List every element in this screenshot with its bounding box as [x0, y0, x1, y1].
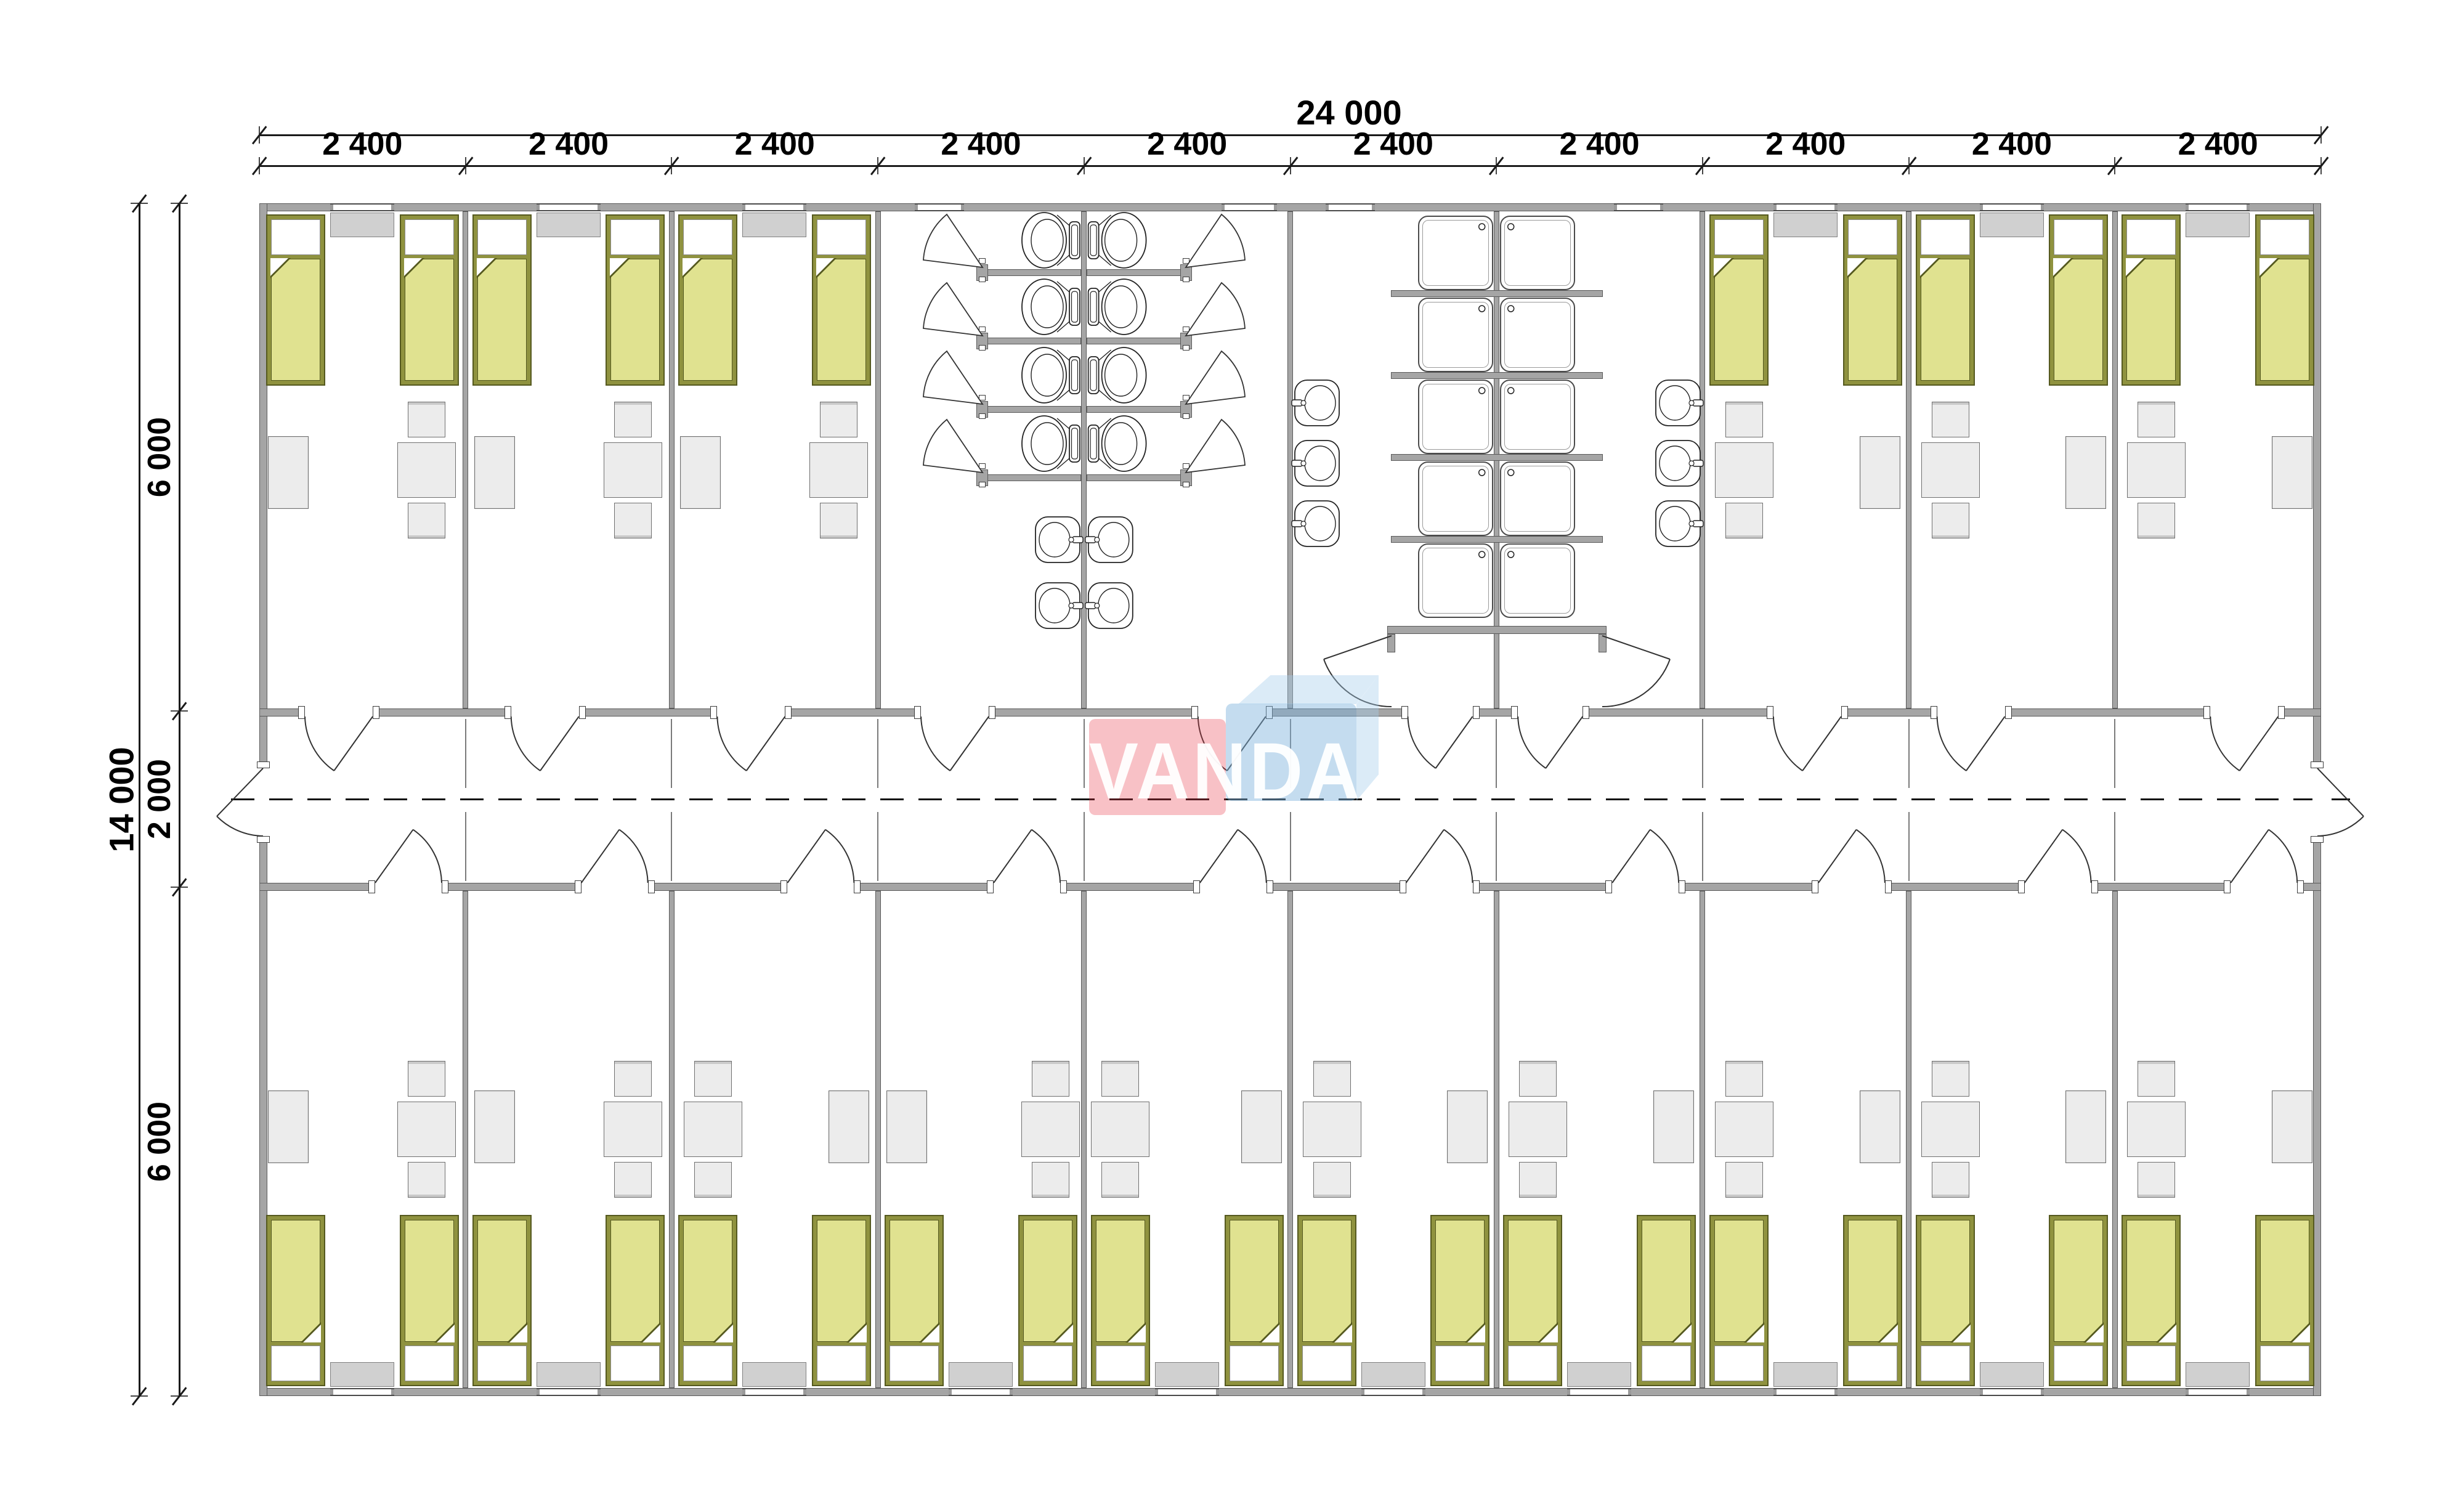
shower-partition [1391, 536, 1603, 543]
logo-blue-bevel-top [1238, 675, 1379, 704]
shower-tray-inner [1422, 466, 1489, 532]
door-jamb [1473, 880, 1480, 893]
toilet-cistern [1088, 288, 1099, 325]
bed-blanket [1023, 1220, 1072, 1342]
desk [1447, 1090, 1488, 1163]
bed-blanket [683, 259, 732, 381]
door-jamb [2297, 880, 2304, 893]
bed-fold [1262, 1325, 1279, 1342]
toilet-icon [1031, 354, 1063, 396]
bed [812, 1215, 871, 1386]
toilet-cistern [1090, 225, 1096, 256]
radiator [742, 1362, 806, 1387]
chair [2138, 1162, 2175, 1198]
chair [1519, 1061, 1557, 1097]
door-swing [717, 716, 746, 771]
bed-pillow [1921, 1346, 1970, 1381]
bed [400, 1215, 459, 1386]
bed-blanket [1302, 1220, 1352, 1342]
door-swing [1200, 830, 1238, 883]
chair [1032, 1162, 1069, 1198]
bed-fold [683, 258, 700, 276]
bed-fold [2053, 258, 2071, 276]
bed-blanket [477, 1220, 527, 1342]
bed [1916, 1215, 1975, 1386]
toilet-icon [1102, 279, 1146, 335]
radiator [1361, 1362, 1425, 1387]
door-swing [2240, 716, 2279, 771]
sink-tap [1095, 537, 1100, 542]
door-opening [717, 708, 785, 717]
toilet-icon [1022, 279, 1066, 335]
sink-icon [1035, 583, 1080, 628]
dim-label-module: 2 400 [1713, 126, 1898, 160]
radiator [1155, 1362, 1219, 1387]
sink-icon [1660, 506, 1690, 541]
door-opening [994, 882, 1060, 891]
bed-blanket [1848, 1220, 1897, 1342]
door-jamb [298, 706, 305, 719]
door-jamb [780, 880, 787, 893]
door-jamb [1841, 706, 1848, 719]
bed-fold [303, 1325, 321, 1342]
sink-icon [1656, 501, 1700, 546]
desk [2272, 1090, 2312, 1163]
dim-label-module: 2 400 [2126, 126, 2311, 160]
chair [1725, 1061, 1763, 1097]
chair [1932, 402, 1969, 437]
radiator [949, 1362, 1013, 1387]
bed-pillow [1714, 1346, 1764, 1381]
bed-fold [2126, 258, 2144, 276]
door-jamb [579, 706, 586, 719]
sink-icon [1039, 588, 1070, 623]
door-jamb [1183, 258, 1189, 264]
dim-label-module: 2 400 [683, 126, 867, 160]
shower-tray-inner [1504, 302, 1571, 368]
module-centerline [1290, 719, 1291, 788]
window [330, 203, 394, 211]
door-jamb [2203, 706, 2210, 719]
room-wall [463, 891, 468, 1388]
shower-tray [1418, 543, 1493, 618]
toilet-icon [1031, 219, 1063, 261]
door-jamb [1767, 706, 1773, 719]
bed-fold [1334, 1325, 1352, 1342]
door-jamb [1266, 880, 1273, 893]
door-jamb [1060, 880, 1067, 893]
door-opening [305, 708, 373, 717]
sink-tap [1301, 461, 1306, 466]
shower-partition [1391, 290, 1603, 297]
shower-partition [1391, 372, 1603, 379]
door-jamb [1400, 880, 1406, 893]
radiator [2186, 1362, 2250, 1387]
table [1715, 1102, 1773, 1157]
toilet-cistern [1090, 291, 1096, 322]
toilet-icon [1099, 418, 1111, 469]
door-swing [2231, 830, 2269, 883]
window [537, 1388, 601, 1396]
door-swing [950, 716, 989, 771]
wc-partition [986, 338, 1081, 344]
door-swing [1650, 830, 1679, 883]
door-jamb [1266, 706, 1273, 719]
room-wall [669, 211, 675, 708]
shower-tray-inner [1422, 548, 1489, 614]
door-opening [2210, 708, 2278, 717]
dim-label-section: 6 000 [141, 417, 178, 497]
sink-icon [1295, 501, 1339, 546]
door-jamb [979, 277, 986, 282]
bed-fold [1847, 258, 1865, 276]
door-jamb [1183, 395, 1189, 400]
module-centerline [877, 719, 878, 788]
table [604, 442, 662, 498]
table [1715, 442, 1773, 498]
stall-door [923, 214, 983, 267]
bed [1503, 1215, 1562, 1386]
door-opening [2025, 882, 2091, 891]
door-swing [1324, 636, 1392, 659]
shower-tray-inner [1422, 302, 1489, 368]
bed-blanket [2126, 259, 2176, 381]
radiator [1980, 1362, 2044, 1387]
door-jamb [505, 706, 511, 719]
room-wall [1081, 891, 1087, 1388]
radiator [1980, 213, 2044, 237]
toilet-cistern [1090, 428, 1096, 459]
toilet-icon [1057, 282, 1069, 332]
sink-tap [1095, 603, 1100, 608]
toilet-icon [1022, 347, 1066, 403]
desk [1860, 436, 1900, 509]
sink-icon [1039, 522, 1070, 557]
bed-blanket [2260, 259, 2309, 381]
room-wall [1287, 211, 1293, 708]
door-opening [1408, 708, 1473, 717]
door-jamb [1605, 880, 1612, 893]
toilet-cistern [1069, 222, 1080, 259]
door-jamb [1473, 706, 1480, 719]
bed-blanket [1435, 1220, 1485, 1342]
bed-fold [1880, 1325, 1898, 1342]
table [1509, 1102, 1567, 1157]
bed [1225, 1215, 1284, 1386]
corridor-centerline [231, 798, 2350, 800]
door-swing [2062, 830, 2091, 883]
room-wall [2112, 211, 2118, 708]
wc-partition [986, 474, 1081, 481]
toilet-icon [1099, 350, 1111, 400]
toilet-icon [1105, 423, 1137, 465]
bed-pillow [1642, 1346, 1691, 1381]
shower-vestibule-post [1599, 634, 1607, 652]
chair [614, 402, 652, 437]
room-wall [1906, 211, 1911, 708]
door-opening [787, 882, 854, 891]
stall-door [1186, 420, 1245, 473]
sink-tap [1085, 603, 1096, 609]
stall-door [1186, 214, 1245, 267]
room-wall [2112, 891, 2118, 1388]
desk [680, 436, 721, 509]
dim-label-module: 2 400 [270, 126, 455, 160]
bed-fold [1920, 258, 1938, 276]
shower-vestibule-post [1387, 634, 1395, 652]
door-swing [334, 716, 373, 771]
sink-icon [1656, 380, 1700, 426]
chair [614, 503, 652, 538]
stall-door [923, 351, 983, 404]
bed-pillow [2260, 1346, 2309, 1381]
chair [2138, 402, 2175, 437]
bed-fold [1055, 1325, 1073, 1342]
bed-fold [1674, 1325, 1692, 1342]
toilet-icon [1022, 213, 1066, 268]
sink-tap [1301, 400, 1306, 405]
door-opening [2231, 882, 2297, 891]
door-jamb [2091, 880, 2098, 893]
room-wall [1700, 891, 1705, 1388]
door-swing [1408, 716, 1436, 768]
door-swing [1238, 830, 1266, 883]
window [1773, 1388, 1838, 1396]
shower-tray-inner [1422, 384, 1489, 450]
corridor-wall-bottom [259, 883, 2321, 891]
dim-label-total-width: 24 000 [1226, 92, 1472, 132]
shower-tray [1500, 216, 1575, 290]
dim-label-module: 2 400 [1507, 126, 1692, 160]
door-jamb [1191, 706, 1198, 719]
toilet-cistern [1088, 425, 1099, 462]
door-jamb [2311, 836, 2324, 843]
door-jamb [1511, 706, 1518, 719]
bed-fold [610, 258, 628, 276]
bed-blanket [1096, 1220, 1145, 1342]
sink-tap [1292, 400, 1302, 406]
door-swing [2210, 716, 2239, 771]
table [604, 1102, 662, 1157]
room-wall [875, 891, 881, 1388]
dim-label-section: 6 000 [141, 1102, 178, 1182]
logo-blue-bevel-side [1356, 675, 1379, 801]
shower-tray [1418, 298, 1493, 372]
door-swing [305, 716, 334, 771]
door-jamb [1193, 880, 1200, 893]
bed [266, 214, 325, 386]
door-swing [1227, 716, 1266, 771]
desk [1653, 1090, 1694, 1163]
door-jamb [854, 880, 861, 893]
stall-door [1186, 283, 1245, 336]
radiator [537, 213, 601, 237]
door-jamb [2018, 880, 2025, 893]
logo-text: VANDA [1089, 726, 1360, 816]
chair [1725, 402, 1763, 437]
dim-label-total-height: 14 000 [102, 747, 142, 852]
bed-pillow [1023, 1346, 1072, 1381]
door-swing [2317, 816, 2364, 836]
sink-tap [1689, 400, 1694, 405]
toilet-icon [1099, 282, 1111, 332]
door-swing [1612, 830, 1650, 883]
toilet-icon [1105, 219, 1137, 261]
module-centerline [1702, 812, 1703, 881]
door-swing [619, 830, 647, 883]
bed [1430, 1215, 1489, 1386]
bed-pillow [2126, 219, 2176, 255]
module-centerline [2114, 719, 2115, 788]
module-centerline [1084, 719, 1085, 788]
bed [2255, 214, 2314, 386]
module-centerline [1702, 719, 1703, 788]
room-wall [875, 211, 881, 708]
door-swing [787, 830, 825, 883]
table [2127, 1102, 2186, 1157]
room-wall [1700, 211, 1705, 708]
bed [1843, 214, 1902, 386]
bed-pillow [271, 1346, 320, 1381]
door-opening [1406, 882, 1473, 891]
door-swing [1602, 659, 1670, 707]
bed [678, 1215, 737, 1386]
wc-partition [986, 406, 1081, 413]
bed-fold [1953, 1325, 1971, 1342]
toilet-cistern [1072, 428, 1078, 459]
radiator [330, 213, 394, 237]
bed-fold [1540, 1325, 1558, 1342]
dim-label-module: 2 400 [1919, 126, 2104, 160]
door-swing [1032, 830, 1060, 883]
bed-pillow [2054, 1346, 2103, 1381]
toilet-cistern [1088, 357, 1099, 394]
sink-icon [1088, 583, 1133, 628]
window [742, 1388, 806, 1396]
room-wall [669, 891, 675, 1388]
door-swing [825, 830, 854, 883]
chair [614, 1061, 652, 1097]
door-swing [2025, 830, 2063, 883]
door-jamb [257, 836, 270, 843]
bed [678, 214, 737, 386]
dim-label-section: 2 000 [141, 759, 178, 839]
module-centerline [671, 812, 672, 881]
chair [614, 1162, 652, 1198]
bed-pillow [2126, 1346, 2176, 1381]
chair [2138, 1061, 2175, 1097]
bed [2122, 1215, 2181, 1386]
module-centerline [877, 812, 878, 881]
bed-blanket [610, 259, 660, 381]
door-swing [1773, 716, 1802, 771]
toilet-cistern [1069, 288, 1080, 325]
desk [829, 1090, 869, 1163]
table [2127, 442, 2186, 498]
door-jamb [2311, 761, 2324, 768]
bed-fold [922, 1325, 939, 1342]
door-jamb [785, 706, 792, 719]
stall-door [923, 283, 983, 336]
door-jamb [979, 258, 986, 264]
bed-fold [2158, 1325, 2176, 1342]
radiator [742, 213, 806, 237]
door-jamb [1812, 880, 1818, 893]
shower-tray [1500, 461, 1575, 536]
bed [1018, 1215, 1077, 1386]
bed-blanket [2054, 259, 2103, 381]
module-centerline [465, 812, 466, 881]
door-jamb [2278, 706, 2285, 719]
door-swing [2269, 830, 2297, 883]
door-jamb [914, 706, 921, 719]
bed-fold [477, 258, 495, 276]
window [330, 1388, 394, 1396]
bed-blanket [271, 259, 320, 381]
door-opening [1198, 708, 1266, 717]
door-swing [582, 830, 620, 883]
door-swing [375, 830, 413, 883]
radiator [2186, 213, 2250, 237]
bed [1916, 214, 1975, 386]
chair [820, 402, 857, 437]
door-swing [921, 716, 950, 771]
stall-door [923, 420, 983, 473]
bed-fold [437, 1325, 455, 1342]
bed-pillow [271, 219, 320, 255]
door-opening [921, 708, 989, 717]
sink-tap [1689, 461, 1694, 466]
shower-tray-inner [1504, 548, 1571, 614]
window [2186, 203, 2250, 211]
table [1303, 1102, 1361, 1157]
bed-fold [642, 1325, 660, 1342]
bed-pillow [890, 1346, 939, 1381]
bed-blanket [1714, 259, 1764, 381]
chair [1725, 1162, 1763, 1198]
door-jamb [979, 327, 986, 332]
door-jamb [710, 706, 717, 719]
module-centerline [2114, 812, 2115, 881]
bed [1709, 1215, 1769, 1386]
module-centerline [1084, 812, 1085, 881]
table [1921, 442, 1980, 498]
bed-pillow [610, 1346, 660, 1381]
shower-tray-inner [1422, 220, 1489, 286]
sink-tap [1085, 537, 1096, 543]
wc-partition [1087, 474, 1183, 481]
toilet-cistern [1072, 225, 1078, 256]
bed-blanket [271, 1220, 320, 1342]
bed [1297, 1215, 1356, 1386]
door-opening [1200, 882, 1266, 891]
bed-pillow [405, 219, 454, 255]
bed-fold [2259, 258, 2277, 276]
chair [2138, 503, 2175, 538]
door-swing [217, 816, 263, 836]
desk [1860, 1090, 1900, 1163]
chair [408, 402, 445, 437]
bed [472, 1215, 532, 1386]
shower-tray [1500, 543, 1575, 618]
toilet-icon [1057, 418, 1069, 469]
toilet-cistern [1088, 222, 1099, 259]
bed-pillow [817, 219, 866, 255]
door-swing [1444, 830, 1472, 883]
door-swing [1602, 636, 1670, 659]
bed-fold [404, 258, 422, 276]
chair [1101, 1162, 1139, 1198]
